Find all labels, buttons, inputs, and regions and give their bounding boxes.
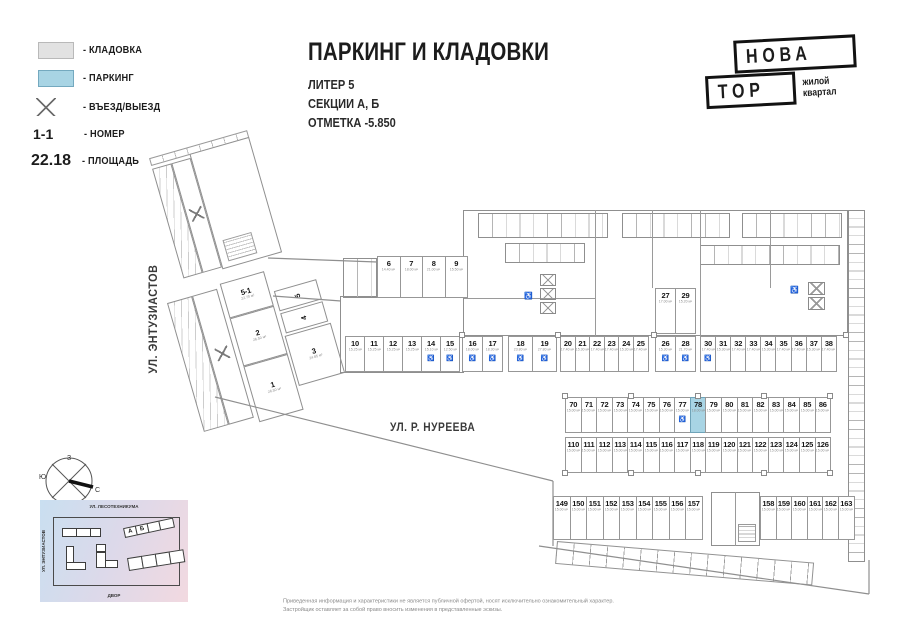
unit-cell[interactable]: 10 15.25 м² — [345, 336, 365, 372]
unit-cell[interactable]: 9 15.50 м² — [445, 256, 469, 298]
site-plan-minimap: УЛ. ЛЕСОТЕХНИКУМА УЛ. ЭНТУЗИАСТОВ ДВОР А… — [40, 500, 188, 602]
storage-row-26-28: 26 15.30 м² ♿ 28 21.70 м² ♿ — [655, 336, 696, 372]
storage-row-27-29: 27 17.00 м² 29 15.20 м² — [655, 288, 696, 334]
unit-area: 21.00 м² — [427, 268, 440, 272]
column — [761, 470, 767, 476]
accessible-icon: ♿ — [524, 292, 533, 300]
unit-area: 15.00 м² — [572, 508, 585, 512]
unit-area: 15.00 м² — [707, 409, 720, 413]
unit-number: 111 — [583, 441, 594, 449]
unit-number: 116 — [661, 441, 673, 449]
unit-area: 15.00 м² — [777, 508, 790, 512]
unit-number: 6 — [387, 260, 391, 268]
unit-area: 17.40 м² — [701, 348, 714, 352]
unit-area: 15.25 м² — [348, 348, 361, 352]
unit-cell[interactable]: 123 15.00 м² — [768, 437, 785, 473]
compass-west: З — [67, 455, 71, 462]
unit-number: 30 — [704, 340, 712, 348]
unit-cell[interactable]: 122 15.00 м² — [752, 437, 769, 473]
storage-row-18-19: 18 23.80 м² ♿ 19 27.80 м² ♿ — [508, 336, 557, 372]
unit-area: 15.00 м² — [707, 449, 720, 453]
unit-cell[interactable]: 28 21.70 м² ♿ — [675, 336, 696, 372]
unit-area: 15.00 м² — [691, 449, 704, 453]
unit-area: 15.00 м² — [660, 449, 673, 453]
unit-cell[interactable]: 16 18.00 м² ♿ — [462, 336, 483, 372]
accessible-icon: ♿ — [427, 356, 434, 363]
unit-number: 80 — [725, 401, 733, 409]
unit-cell[interactable]: 163 15.00 м² — [838, 496, 855, 540]
accessible-icon: ♿ — [517, 356, 524, 363]
unit-number: 21 — [578, 340, 586, 348]
unit-area: 15.00 м² — [676, 449, 689, 453]
column — [651, 332, 657, 338]
unit-number: 161 — [809, 500, 821, 508]
unit-cell[interactable]: 7 18.00 м² — [400, 256, 424, 298]
unit-area: 18.30 м² — [486, 348, 499, 352]
unit-number: 79 — [710, 401, 718, 409]
unit-cell[interactable]: 6 14.40 м² — [377, 256, 401, 298]
unit-number: 32 — [734, 340, 742, 348]
unit-cell[interactable]: 114 15.00 м² — [627, 437, 644, 473]
unit-number: 154 — [638, 500, 650, 508]
siteplan-building — [105, 560, 118, 568]
unit-number: 34 — [764, 340, 772, 348]
unit-cell[interactable]: 29 15.20 м² — [675, 288, 696, 334]
storage-row-20-25: 20 17.40 м² 21 15.30 м² 22 17.40 м² 23 1… — [560, 336, 649, 372]
compass-south: Ю — [39, 474, 46, 481]
unit-area: 15.00 м² — [605, 508, 618, 512]
accessible-icon: ♿ — [446, 356, 453, 363]
unit-area: 15.30 м² — [620, 348, 633, 352]
compass-north: С — [95, 487, 100, 494]
unit-area: 17.40 м² — [732, 348, 745, 352]
unit-cell[interactable]: 22 17.40 м² — [589, 336, 605, 372]
unit-area: 15.00 м² — [582, 449, 595, 453]
unit-area: 18.00 м² — [405, 268, 418, 272]
column — [827, 470, 833, 476]
unit-area: 17.00 м² — [659, 300, 672, 304]
unit-area: 15.00 м² — [555, 508, 568, 512]
unit-number: 13 — [408, 340, 416, 348]
unit-number: 163 — [840, 500, 852, 508]
siteplan-street-left: УЛ. ЭНТУЗИАСТОВ — [42, 530, 47, 572]
unit-area: 18.00 м² — [466, 348, 479, 352]
unit-area: 17.40 м² — [605, 348, 618, 352]
unit-cell[interactable]: 126 15.00 м² — [815, 437, 832, 473]
unit-number: 156 — [671, 500, 683, 508]
unit-cell[interactable]: 35 17.40 м² — [775, 336, 791, 372]
unit-area: 27.80 м² — [538, 348, 551, 352]
unit-cell[interactable]: 116 15.00 м² — [659, 437, 676, 473]
accessible-icon: ♿ — [489, 356, 496, 363]
unit-number: 36 — [795, 340, 803, 348]
column — [562, 470, 568, 476]
storage-row-10-15: 10 15.25 м² 11 15.25 м² 12 15.25 м² 13 1… — [345, 336, 460, 372]
unit-cell[interactable]: 24 15.30 м² — [618, 336, 634, 372]
unit-cell[interactable]: 36 17.40 м² — [791, 336, 807, 372]
unit-area: 15.00 м² — [738, 449, 751, 453]
unit-number: 114 — [630, 441, 642, 449]
unit-area: 15.00 м² — [660, 409, 673, 413]
column — [695, 393, 701, 399]
unit-cell[interactable]: 162 15.00 м² — [822, 496, 839, 540]
unit-area: 15.00 м² — [645, 409, 658, 413]
siteplan-yard-label: ДВОР — [59, 594, 170, 599]
unit-number: 123 — [770, 441, 782, 449]
unit-cell[interactable]: 14 15.10 м² ♿ — [421, 336, 441, 372]
unit-area: 15.50 м² — [450, 268, 463, 272]
unit-number: 28 — [682, 340, 690, 348]
unit-cell[interactable]: 161 15.00 м² — [807, 496, 824, 540]
disclaimer-line-1: Приведенная информация и характеристики … — [283, 598, 614, 606]
unit-area: 15.00 м² — [567, 409, 580, 413]
unit-cell[interactable]: 27 17.00 м² — [655, 288, 676, 334]
unit-area: 15.00 м² — [687, 508, 700, 512]
unit-number: 122 — [754, 441, 766, 449]
unit-cell[interactable]: 154 15.00 м² — [636, 496, 654, 540]
unit-area: 15.25 м² — [386, 348, 399, 352]
unit-cell[interactable]: 21 15.30 м² — [575, 336, 591, 372]
unit-area: 17.40 м² — [634, 348, 647, 352]
unit-area: 12.50 м² — [443, 348, 456, 352]
unit-number: 73 — [616, 401, 624, 409]
unit-area: 15.00 м² — [816, 449, 829, 453]
unit-area: 23.80 м² — [514, 348, 527, 352]
unit-area: 15.00 м² — [738, 409, 751, 413]
column — [761, 393, 767, 399]
unit-number: 9 — [454, 260, 458, 268]
unit-cell[interactable]: 152 15.00 м² — [603, 496, 621, 540]
unit-cell[interactable]: 110 15.00 м² — [565, 437, 582, 473]
unit-number: 83 — [772, 401, 780, 409]
unit-area: 14.40 м² — [382, 268, 395, 272]
unit-area: 15.00 м² — [754, 409, 767, 413]
unit-number: 84 — [788, 401, 796, 409]
unit-number: 124 — [786, 441, 798, 449]
unit-cell[interactable]: 149 15.00 м² — [553, 496, 571, 540]
unit-number: 126 — [817, 441, 829, 449]
parking-row-158-163: 158 15.00 м² 159 15.00 м² 160 15.00 м² 1… — [760, 496, 855, 540]
unit-area: 15.00 м² — [723, 449, 736, 453]
unit-number: 159 — [778, 500, 790, 508]
accessible-icon: ♿ — [682, 356, 689, 363]
unit-number: 25 — [637, 340, 645, 348]
unit-cell[interactable]: 82 15.00 м² — [752, 397, 769, 433]
unit-cell[interactable]: 12 15.25 м² — [383, 336, 403, 372]
unit-area: 17.40 м² — [747, 348, 760, 352]
unit-number: 16 — [469, 340, 477, 348]
unit-cell[interactable]: 112 15.00 м² — [596, 437, 613, 473]
unit-number: 120 — [723, 441, 735, 449]
unit-cell[interactable]: 32 17.40 м² — [730, 336, 746, 372]
siteplan-building — [76, 528, 91, 537]
unit-area: 15.00 м² — [598, 409, 611, 413]
unit-number: 86 — [819, 401, 827, 409]
siteplan-street-top: УЛ. ЛЕСОТЕХНИКУМА — [59, 505, 170, 510]
unit-number: 112 — [599, 441, 611, 449]
siteplan-building — [168, 549, 185, 564]
unit-cell[interactable]: 20 17.40 м² — [560, 336, 576, 372]
unit-number: 113 — [614, 441, 626, 449]
unit-number: 27 — [662, 292, 670, 300]
unit-cell[interactable]: 78 18.00 м² — [690, 397, 707, 433]
unit-number: 8 — [432, 260, 436, 268]
unit-cell[interactable]: 25 17.40 м² — [633, 336, 649, 372]
unit-number: 10 — [351, 340, 359, 348]
unit-number: 19 — [541, 340, 549, 348]
unit-cell[interactable]: 118 15.00 м² — [690, 437, 707, 473]
unit-area: 17.40 м² — [561, 348, 574, 352]
unit-area: 15.30 м² — [807, 348, 820, 352]
unit-cell[interactable]: 120 15.00 м² — [721, 437, 738, 473]
unit-area: 15.00 м² — [629, 449, 642, 453]
parking-row-110-126: 110 15.00 м² 111 15.00 м² 112 15.00 м² 1… — [565, 437, 831, 473]
accessible-icon: ♿ — [679, 417, 686, 424]
unit-number: 71 — [585, 401, 593, 409]
unit-cell[interactable]: 71 15.00 м² — [581, 397, 598, 433]
unit-cell[interactable]: 117 15.00 м² — [674, 437, 691, 473]
unit-area: 15.00 м² — [613, 409, 626, 413]
unit-number: 24 — [622, 340, 630, 348]
unit-number: 150 — [572, 500, 584, 508]
unit-cell[interactable]: 79 15.00 м² — [705, 397, 722, 433]
unit-number: 118 — [692, 441, 704, 449]
unit-area: 15.00 м² — [769, 449, 782, 453]
unit-cell[interactable]: 38 17.40 м² — [821, 336, 837, 372]
unit-cell[interactable]: 8 21.00 м² — [422, 256, 446, 298]
unit-number: 115 — [646, 441, 658, 449]
unit-number: 75 — [647, 401, 655, 409]
unit-number: 37 — [810, 340, 818, 348]
unit-cell[interactable]: 158 15.00 м² — [760, 496, 777, 540]
unit-cell[interactable]: 31 15.30 м² — [715, 336, 731, 372]
unit-cell[interactable]: 73 15.00 м² — [612, 397, 629, 433]
unit-area: 17.40 м² — [777, 348, 790, 352]
unit-area: 15.00 м² — [654, 508, 667, 512]
unit-number: 20 — [564, 340, 572, 348]
unit-area: 15.00 м² — [621, 508, 634, 512]
unit-area: 15.00 м² — [801, 409, 814, 413]
unit-cell[interactable]: 111 15.00 м² — [581, 437, 598, 473]
unit-cell[interactable]: 37 15.30 м² — [806, 336, 822, 372]
unit-cell[interactable]: 30 17.40 м² ♿ — [700, 336, 716, 372]
accessible-icon: ♿ — [469, 356, 476, 363]
column — [562, 393, 568, 399]
column — [827, 393, 833, 399]
unit-number: 29 — [682, 292, 690, 300]
unit-number: 149 — [556, 500, 568, 508]
unit-area: 15.00 м² — [676, 409, 689, 413]
unit-area: 15.00 м² — [588, 508, 601, 512]
unit-cell[interactable]: 72 15.00 м² — [596, 397, 613, 433]
unit-area: 15.00 м² — [629, 409, 642, 413]
unit-area: 15.30 м² — [762, 348, 775, 352]
unit-area: 15.00 м² — [598, 449, 611, 453]
unit-cell[interactable]: 26 15.30 м² ♿ — [655, 336, 676, 372]
unit-area: 15.00 м² — [793, 508, 806, 512]
unit-cell[interactable]: 156 15.00 м² — [669, 496, 687, 540]
unit-cell[interactable]: 113 15.00 м² — [612, 437, 629, 473]
column — [628, 470, 634, 476]
unit-area: 15.00 м² — [567, 449, 580, 453]
unit-area: 15.20 м² — [679, 300, 692, 304]
unit-cell[interactable]: 13 15.25 м² — [402, 336, 422, 372]
unit-number: 110 — [568, 441, 580, 449]
unit-cell[interactable]: 160 15.00 м² — [791, 496, 808, 540]
parking-row-70-86: 70 15.00 м² 71 15.00 м² 72 15.00 м² 73 1… — [565, 397, 831, 433]
unit-area: 17.40 м² — [792, 348, 805, 352]
unit-cell[interactable]: 76 15.00 м² — [659, 397, 676, 433]
unit-cell[interactable]: 11 15.25 м² — [364, 336, 384, 372]
column — [695, 470, 701, 476]
siteplan-building — [66, 562, 86, 570]
disclaimer-line-2: Застройщик оставляет за собой право внос… — [283, 606, 614, 614]
siteplan-building — [96, 544, 106, 552]
unit-cell[interactable]: 23 17.40 м² — [604, 336, 620, 372]
unit-number: 18 — [517, 340, 525, 348]
unit-number: 38 — [825, 340, 833, 348]
unit-number: 72 — [601, 401, 609, 409]
accessible-icon: ♿ — [790, 286, 799, 294]
column — [459, 332, 465, 338]
unit-cell[interactable]: 33 17.40 м² — [745, 336, 761, 372]
column — [555, 332, 561, 338]
unit-area: 15.00 м² — [762, 508, 775, 512]
unit-cell[interactable]: 74 15.00 м² — [627, 397, 644, 433]
unit-number: 26 — [662, 340, 670, 348]
unit-number: 23 — [608, 340, 616, 348]
unit-number: 14 — [427, 340, 435, 348]
unit-area: 15.00 м² — [638, 508, 651, 512]
unit-area: 15.00 м² — [754, 449, 767, 453]
unit-cell[interactable]: 15 12.50 м² ♿ — [440, 336, 460, 372]
unit-cell[interactable]: 81 15.00 м² — [737, 397, 754, 433]
unit-cell[interactable]: 121 15.00 м² — [737, 437, 754, 473]
unit-area: 15.00 м² — [840, 508, 853, 512]
unit-area: 15.10 м² — [424, 348, 437, 352]
unit-number: 121 — [739, 441, 751, 449]
unit-cell[interactable]: 125 15.00 м² — [799, 437, 816, 473]
unit-number: 85 — [803, 401, 811, 409]
unit-number: 119 — [708, 441, 720, 449]
unit-number: 117 — [677, 441, 689, 449]
unit-number: 155 — [655, 500, 667, 508]
unit-number: 162 — [825, 500, 837, 508]
column — [843, 332, 849, 338]
unit-area: 15.00 м² — [769, 409, 782, 413]
unit-area: 15.00 м² — [671, 508, 684, 512]
unit-area: 21.70 м² — [679, 348, 692, 352]
unit-area: 15.00 м² — [723, 409, 736, 413]
parking-row-149-157: 149 15.00 м² 150 15.00 м² 151 15.00 м² 1… — [553, 496, 703, 540]
unit-cell[interactable]: 159 15.00 м² — [776, 496, 793, 540]
unit-number: 151 — [589, 500, 601, 508]
unit-cell[interactable]: 34 15.30 м² — [760, 336, 776, 372]
unit-area: 15.30 м² — [717, 348, 730, 352]
unit-cell[interactable]: 86 15.00 м² — [815, 397, 832, 433]
unit-number: 15 — [446, 340, 454, 348]
unit-number: 77 — [678, 401, 686, 409]
accessible-icon: ♿ — [662, 356, 669, 363]
unit-number: 160 — [794, 500, 806, 508]
unit-cell[interactable]: 70 15.00 м² — [565, 397, 582, 433]
unit-cell[interactable]: 124 15.00 м² — [783, 437, 800, 473]
unit-number: 33 — [749, 340, 757, 348]
unit-area: 15.00 м² — [808, 508, 821, 512]
unit-number: 22 — [593, 340, 601, 348]
unit-cell[interactable]: 115 15.00 м² — [643, 437, 660, 473]
unit-cell[interactable]: 84 15.00 м² — [783, 397, 800, 433]
unit-area: 15.30 м² — [659, 348, 672, 352]
unit-area: 15.00 м² — [816, 409, 829, 413]
unit-cell[interactable]: 18 23.80 м² ♿ — [508, 336, 533, 372]
unit-cell[interactable]: 80 15.00 м² — [721, 397, 738, 433]
unit-number: 17 — [489, 340, 497, 348]
storage-row-6-9: 6 14.40 м² 7 18.00 м² 8 21.00 м² 9 15.50… — [377, 256, 468, 298]
unit-number: 158 — [762, 500, 774, 508]
unit-number: 35 — [780, 340, 788, 348]
column — [628, 393, 634, 399]
unit-number: 152 — [605, 500, 617, 508]
siteplan-building — [90, 528, 101, 537]
unit-cell[interactable]: 85 15.00 м² — [799, 397, 816, 433]
unit-cell[interactable]: 153 15.00 м² — [619, 496, 637, 540]
unit-area: 15.25 м² — [367, 348, 380, 352]
unit-area: 15.00 м² — [824, 508, 837, 512]
unit-area: 17.40 м² — [590, 348, 603, 352]
disclaimer: Приведенная информация и характеристики … — [283, 598, 614, 615]
unit-number: 31 — [719, 340, 727, 348]
unit-area: 17.40 м² — [822, 348, 835, 352]
accessible-icon: ♿ — [541, 356, 548, 363]
unit-area: 18.00 м² — [691, 409, 704, 413]
unit-area: 15.30 м² — [576, 348, 589, 352]
unit-number: 82 — [756, 401, 764, 409]
unit-number: 7 — [409, 260, 413, 268]
unit-cell[interactable]: 155 15.00 м² — [652, 496, 670, 540]
siteplan-building — [62, 528, 77, 537]
unit-number: 157 — [688, 500, 700, 508]
unit-area: 15.00 м² — [582, 409, 595, 413]
storage-row-16-17: 16 18.00 м² ♿ 17 18.30 м² ♿ — [462, 336, 503, 372]
unit-area: 15.00 м² — [645, 449, 658, 453]
unit-number: 76 — [663, 401, 671, 409]
unit-number: 78 — [694, 401, 702, 409]
unit-cell[interactable]: 19 27.80 м² ♿ — [532, 336, 557, 372]
unit-cell[interactable]: 75 15.00 м² — [643, 397, 660, 433]
unit-cell[interactable]: 119 15.00 м² — [705, 437, 722, 473]
accessible-icon: ♿ — [704, 356, 711, 363]
unit-number: 81 — [741, 401, 749, 409]
unit-number: 11 — [370, 340, 378, 348]
unit-cell[interactable]: 77 15.00 м² ♿ — [674, 397, 691, 433]
unit-number: 153 — [622, 500, 634, 508]
unit-cell[interactable]: 150 15.00 м² — [570, 496, 588, 540]
unit-cell[interactable]: 157 15.00 м² — [685, 496, 703, 540]
unit-number: 70 — [569, 401, 577, 409]
unit-number: 74 — [632, 401, 640, 409]
unit-cell[interactable]: 151 15.00 м² — [586, 496, 604, 540]
unit-cell[interactable]: 17 18.30 м² ♿ — [482, 336, 503, 372]
unit-cell[interactable]: 83 15.00 м² — [768, 397, 785, 433]
unit-number: 12 — [389, 340, 397, 348]
unit-area: 15.00 м² — [785, 449, 798, 453]
unit-area: 15.00 м² — [801, 449, 814, 453]
unit-area: 15.25 м² — [405, 348, 418, 352]
unit-number: 125 — [801, 441, 813, 449]
unit-area: 15.00 м² — [613, 449, 626, 453]
storage-row-30-38: 30 17.40 м² ♿ 31 15.30 м² 32 17.40 м² 33… — [700, 336, 837, 372]
